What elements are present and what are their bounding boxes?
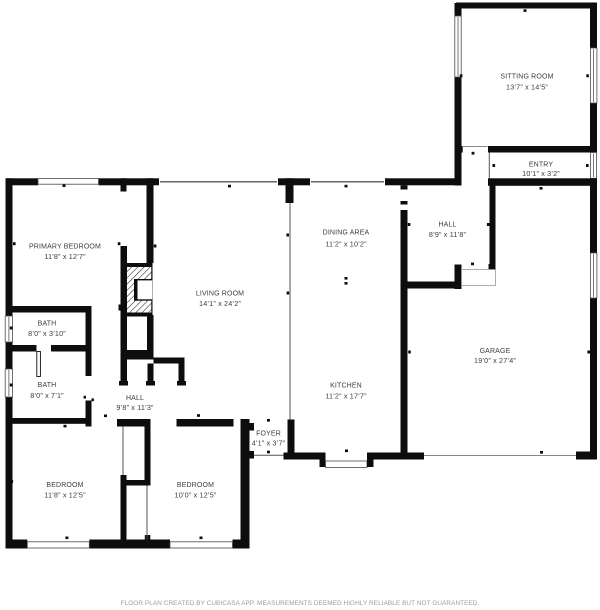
svg-text:11’2” x 17’7”: 11’2” x 17’7” [325,392,367,401]
svg-text:14’1” x 24’2”: 14’1” x 24’2” [199,299,241,308]
svg-text:BATH: BATH [38,321,57,328]
svg-text:11’2” x 10’2”: 11’2” x 10’2” [325,240,367,249]
svg-text:10’1” x 3’2”: 10’1” x 3’2” [522,169,560,178]
svg-text:8’0” x 7’1”: 8’0” x 7’1” [30,391,64,400]
svg-text:FLOOR PLAN CREATED BY CUBICASA: FLOOR PLAN CREATED BY CUBICASA APP. MEAS… [121,600,480,607]
svg-text:4’1” x 3’7”: 4’1” x 3’7” [252,439,286,448]
svg-text:LIVING ROOM: LIVING ROOM [196,291,244,298]
svg-text:9’8” x 11’3”: 9’8” x 11’3” [116,403,154,412]
svg-text:BEDROOM: BEDROOM [177,482,214,489]
svg-text:BATH: BATH [38,382,57,389]
svg-text:PRIMARY BEDROOM: PRIMARY BEDROOM [29,244,101,251]
svg-text:11’8” x 12’5”: 11’8” x 12’5” [44,491,86,500]
svg-text:ENTRY: ENTRY [529,162,554,169]
svg-text:SITTING ROOM: SITTING ROOM [500,74,553,81]
svg-text:DINING AREA: DINING AREA [323,230,370,237]
svg-text:11’8” x 12’7”: 11’8” x 12’7” [44,252,86,261]
svg-text:10’0” x 12’5”: 10’0” x 12’5” [175,491,217,500]
svg-text:HALL: HALL [126,395,144,402]
svg-text:FOYER: FOYER [256,431,281,438]
svg-text:KITCHEN: KITCHEN [330,383,362,390]
svg-text:13’7” x 14’5”: 13’7” x 14’5” [506,83,548,92]
svg-text:HALL: HALL [438,222,456,229]
svg-text:8’9” x 11’8”: 8’9” x 11’8” [429,230,467,239]
svg-text:GARAGE: GARAGE [480,348,511,355]
svg-text:BEDROOM: BEDROOM [46,482,83,489]
svg-text:19’0” x 27’4”: 19’0” x 27’4” [474,356,516,365]
svg-text:8’0” x 3’10”: 8’0” x 3’10” [28,329,66,338]
